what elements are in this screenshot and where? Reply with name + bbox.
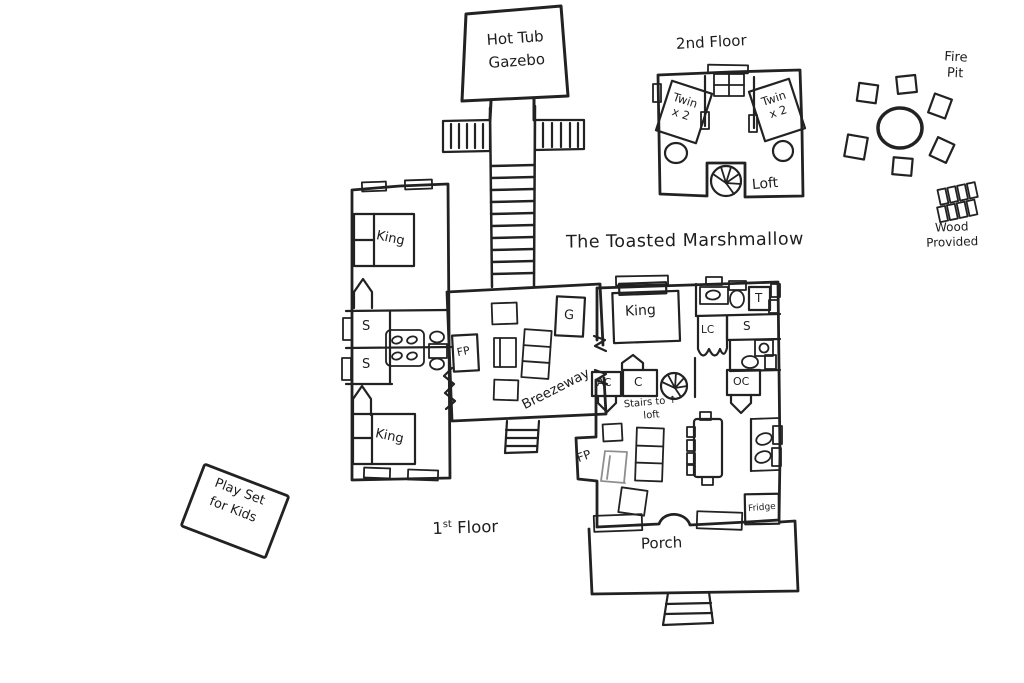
chair-icon <box>773 141 793 161</box>
floor-plan-map: Hot Tub Gazebo 2nd Floor Twin x 2 Twin x… <box>0 0 1024 683</box>
closet-label: C <box>634 375 642 390</box>
hot-tub-gazebo-label: Hot Tub Gazebo <box>470 24 561 77</box>
door-arch-icon <box>622 355 643 370</box>
kitchen-counter-icon <box>751 418 782 471</box>
fire-pit-icon <box>844 75 954 176</box>
sink-icon <box>700 287 728 304</box>
window-marker <box>594 514 643 532</box>
fire-pit-label: Fire Pit <box>927 49 984 84</box>
sink-icon <box>755 340 773 356</box>
wood-pile-icon <box>934 182 982 222</box>
game-cabinet-label: G <box>563 308 574 325</box>
toilet-icon <box>429 332 447 370</box>
fireplace-breezeway-label: FP <box>456 344 472 360</box>
king-primary-label: King <box>625 302 657 321</box>
second-floor-heading: 2nd Floor <box>676 31 748 53</box>
dresser-icon <box>708 65 748 96</box>
couch-icon <box>521 329 551 379</box>
chair-icon <box>665 143 687 163</box>
wood-provided-label: Wood Provided <box>912 219 993 252</box>
second-floor-plan <box>653 65 805 197</box>
floor-plan-drawing <box>0 0 1024 683</box>
stairs-icon <box>663 592 713 625</box>
first-floor-heading: 1st Floor <box>431 496 498 540</box>
stairs-icon <box>505 421 539 453</box>
table-icon <box>618 487 647 515</box>
loft-label: Loft <box>751 175 779 195</box>
spiral-stairs-icon <box>711 166 741 196</box>
toilet-icon <box>742 355 776 369</box>
window-marker <box>697 511 743 530</box>
linen-closet-label: LC <box>701 324 714 337</box>
door-arch-icon <box>354 279 372 308</box>
porch-plan <box>589 521 798 625</box>
first-floor-suffix: st <box>443 519 452 530</box>
ac-closet-label: AC <box>597 377 611 390</box>
shower-lower-label: S <box>362 357 370 373</box>
door-arch-icon <box>731 395 751 413</box>
map-title: The Toasted Marshmallow <box>566 229 804 254</box>
first-floor-word: Floor <box>452 516 499 537</box>
table-icon <box>603 423 623 441</box>
table-icon <box>492 303 518 325</box>
gazebo-stairs-icon <box>490 106 535 287</box>
armchair-icon <box>601 451 627 483</box>
shower-upper-label: S <box>362 319 370 335</box>
shower-bath-label: S <box>743 319 751 334</box>
door-arch-icon <box>353 386 371 415</box>
couch-icon <box>635 428 664 482</box>
table-icon <box>494 380 519 401</box>
tub-label: T <box>755 291 762 306</box>
dining-table-icon <box>687 412 722 485</box>
gazebo-deck-icon <box>443 120 584 152</box>
porch-label: Porch <box>641 533 683 553</box>
chair-icon <box>494 338 516 367</box>
owner-closet-label: OC <box>733 375 749 389</box>
first-floor-number: 1 <box>432 518 443 537</box>
